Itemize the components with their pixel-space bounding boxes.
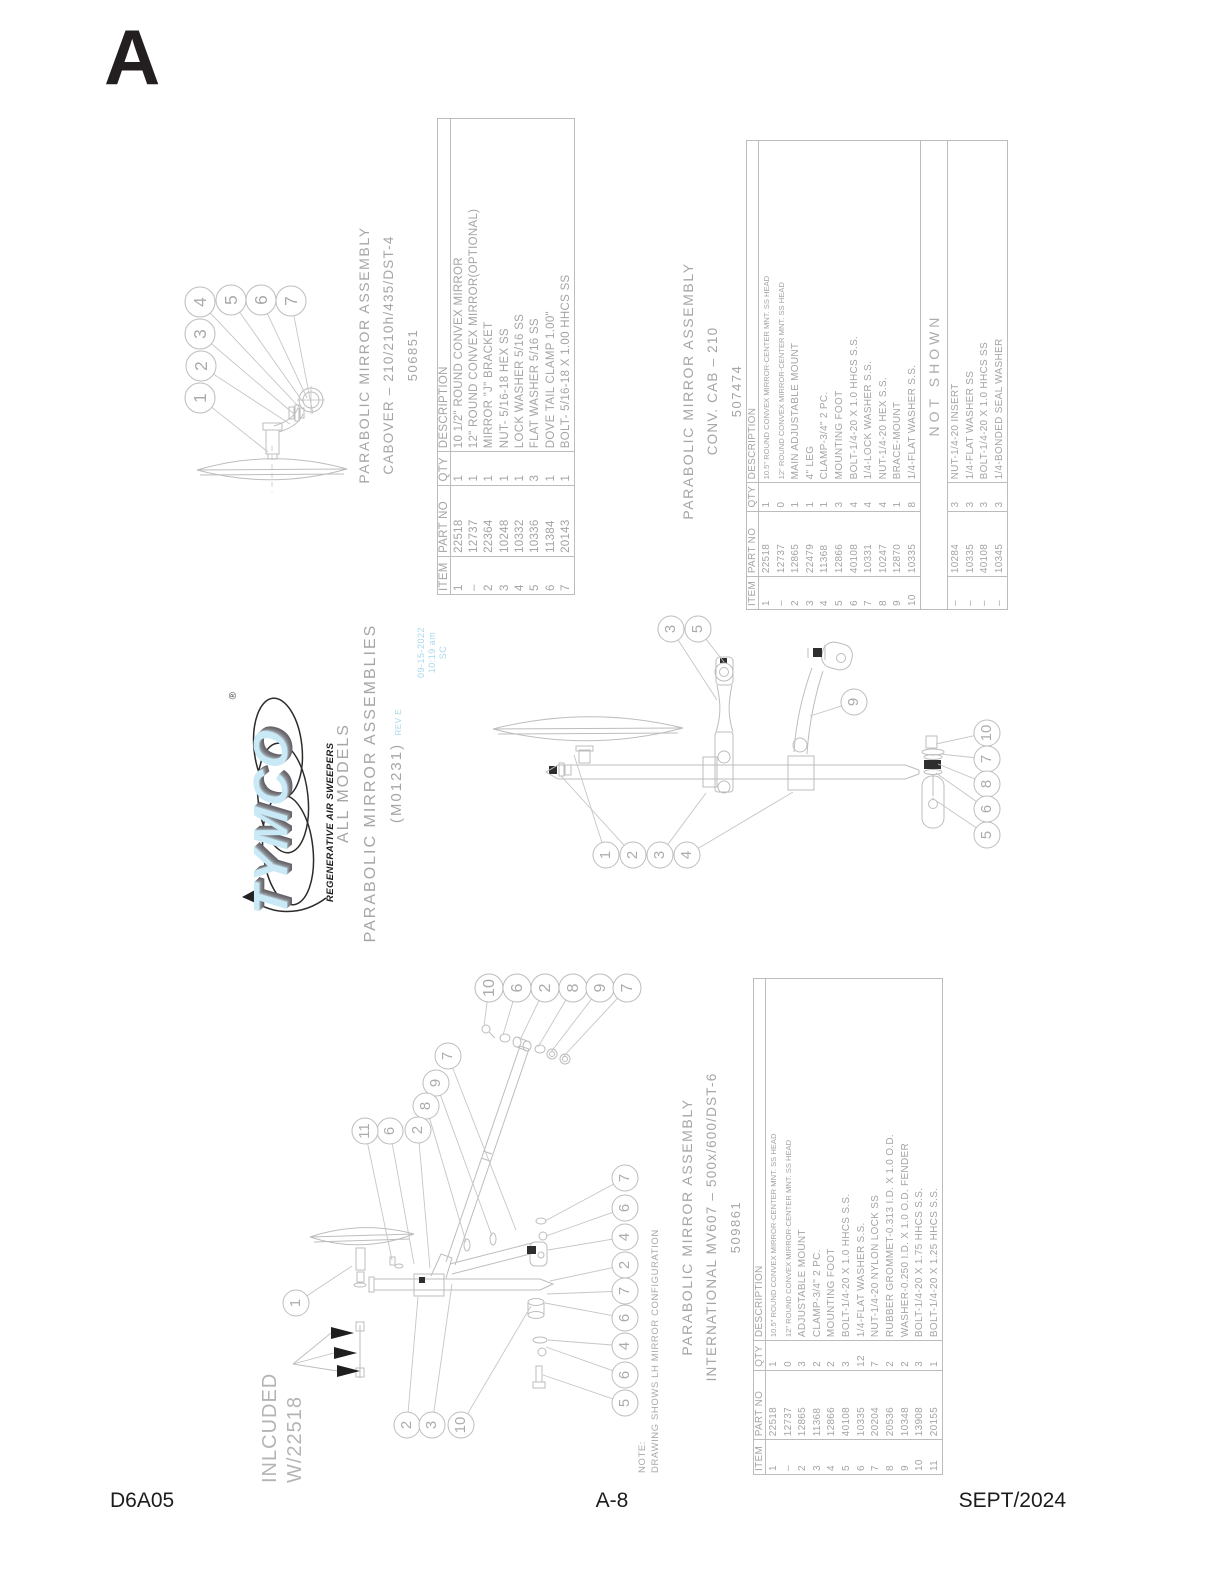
callout-number: 9 [428, 1079, 444, 1087]
assembly-number: 509861 [724, 1052, 747, 1402]
leader-line [408, 1297, 418, 1412]
assembly-model-line: INTERNATIONAL MV607 – 500x/600/DST-6 [700, 1052, 724, 1402]
leader-line [211, 344, 294, 414]
callout-number: 6 [617, 1371, 633, 1379]
parts-table-convcab: ITEMPART NOQTYDESCRIPTION122518110.5" RO… [746, 140, 1008, 610]
table-row: 122518110.5" ROUND CONVEX MIRROR-CENTER … [759, 141, 774, 610]
callout-number: 9 [591, 983, 609, 992]
callout-number: 2 [399, 1421, 415, 1429]
title-international: PARABOLIC MIRROR ASSEMBLY INTERNATIONAL … [675, 1052, 751, 1402]
leader-line [520, 1001, 539, 1040]
callout-number: 7 [617, 1287, 633, 1295]
leader-line [940, 754, 974, 758]
leader-line [551, 999, 591, 1052]
parts-table: ITEMPART NOQTYDESCRIPTION122518110.5" RO… [753, 978, 943, 1475]
table-row: 8102474NUT-1/4-20 HEX S.S. [876, 141, 891, 610]
table-row: 4113681CLAMP-3/4" 2 PC. [818, 141, 833, 610]
callout-number: 6 [251, 295, 271, 305]
included-note: INLCUDED W/22518 [258, 1343, 310, 1483]
table-row: 3102481NUT- 5/16-18 HEX SS [497, 119, 512, 595]
callout-number: 3 [652, 851, 668, 859]
callout-number: 6 [382, 1127, 398, 1135]
included-note-line: INLCUDED [258, 1343, 283, 1483]
drawing-main-title: ALL MODELS PARABOLIC MIRROR ASSEMBLIES (… [330, 613, 458, 953]
table-row: –1033531/4-FLAT WASHER SS [963, 141, 978, 610]
table-row: 2128651MAIN ADJUSTABLE MOUNT [788, 141, 803, 610]
callout-number: 7 [979, 755, 995, 763]
tymco-logo: TYMCO ® REGENERATIVE AIR SWEEPERS [226, 688, 336, 928]
table-row: 7202047NUT-1/4-20 NYLON LOCK SS [869, 979, 884, 1475]
leader-line [434, 1284, 452, 1412]
callout-number: 3 [663, 625, 679, 633]
table-row: 5128663MOUNTING FOOT [832, 141, 847, 610]
table-row: 122518110.5" ROUND CONVEX MIRROR-CENTER … [766, 979, 781, 1475]
callout-number: 3 [190, 329, 210, 339]
leader-line [468, 1306, 531, 1414]
leader-line [240, 312, 303, 402]
table-row: 6113841DOVE TAIL CLAMP 1.00" [543, 119, 558, 595]
callout-number: 5 [617, 1399, 633, 1407]
table-row: 9128701BRACE-MOUNT [891, 141, 906, 610]
note-label: NOTE: [636, 1203, 649, 1473]
revision-stamp: 09-15-2022 10:19 am SC [416, 627, 449, 678]
leader-line [810, 706, 842, 716]
leader-line [538, 1000, 566, 1047]
table-row: 101033581/4-FLAT WASHER S.S. [905, 141, 920, 610]
callout-number: 7 [281, 296, 301, 306]
leader-line [936, 736, 974, 744]
callout-number: 6 [617, 1204, 633, 1212]
stamp-initials: SC [438, 627, 449, 678]
table-row: –401083BOLT-1/4-20 X 1.0 HHCS SS [977, 141, 992, 610]
table-row: 610335121/4-FLAT WASHER S.S. [854, 979, 869, 1475]
table-row: 11201551BOLT-1/4-20 X 1.25 HHCS S.S. [927, 979, 942, 1475]
column-header: PART NO [747, 511, 759, 577]
diagram-international-assembly: 1062897798261117642764652310 [275, 955, 685, 1485]
drawing-number: (M01231) REV E [384, 743, 409, 823]
leader-line [563, 998, 617, 1057]
assembly-number: 506851 [401, 115, 424, 595]
column-header: ITEM [438, 556, 451, 594]
title-cabover: PARABOLIC MIRROR ASSEMBLY CABOVER – 210/… [352, 115, 436, 595]
leader-line [267, 314, 307, 398]
date-code: SEPT/2024 [959, 1489, 1066, 1513]
leader-line [548, 1340, 612, 1345]
callout-number: 8 [418, 1102, 434, 1110]
leader-line [440, 1095, 492, 1236]
callout-number: 6 [979, 805, 995, 813]
assembly-number: 507474 [725, 222, 748, 560]
manual-page: A 1234567 PARABOLIC MIRROR ASSEMBLY CABO… [0, 0, 1224, 1584]
column-header: DESCRIPTION [438, 119, 451, 452]
leader-line [547, 1291, 612, 1294]
table-row: –102843NUT-1/4-20 INSERT [948, 141, 963, 610]
parts-table-cabover: ITEMPART NOQTYDESCRIPTION122518110 1/2" … [437, 118, 575, 595]
leader-line [214, 374, 290, 424]
table-row: 10139083BOLT-1/4-20 X 1.75 HHCS S.S. [912, 979, 927, 1475]
table-row: –1034531/4-BONDED SEAL WASHER [992, 141, 1007, 610]
leader-line [210, 313, 299, 407]
parts-table: ITEMPART NOQTYDESCRIPTION122518110 1/2" … [437, 118, 575, 595]
table-row: 9103482WASHER-0.250 I.D. X 1.0 O.D. FEND… [898, 979, 913, 1475]
diagram-cabover-callouts: 1234567 [185, 285, 313, 452]
assembly-title-line: PARABOLIC MIRROR ASSEMBLY [352, 115, 377, 595]
assembly-model-line: CABOVER – 210/210h/435/DST-4 [377, 115, 401, 595]
callout-number: 5 [221, 295, 241, 305]
table-row: 5401083BOLT-1/4-20 X 1.0 HHCS S.S. [839, 979, 854, 1475]
callout-number: 7 [618, 983, 636, 992]
table-row: 32247914" LEG [803, 141, 818, 610]
diagram-international-callouts: 1062897798261117642764652310 [283, 974, 641, 1438]
callout-number: 4 [190, 297, 210, 307]
included-note-line: W/22518 [283, 1343, 308, 1483]
callout-number: 4 [679, 851, 695, 859]
assembly-model-line: CONV. CAB – 210 [701, 222, 725, 560]
table-row: 71033141/4-LOCK WASHER S.S. [861, 141, 876, 610]
callout-number: 2 [536, 983, 554, 992]
table-row: –12737112" ROUND CONVEX MIRROR(OPTIONAL) [466, 119, 481, 595]
callout-number: 11 [357, 1123, 373, 1138]
leader-line [543, 1375, 613, 1399]
leader-line [548, 1239, 612, 1250]
leader-line [698, 792, 793, 848]
leader-line [212, 407, 268, 452]
callout-number: 1 [190, 393, 210, 403]
column-header: QTY [438, 452, 451, 485]
column-header: QTY [747, 483, 759, 511]
column-header: PART NO [754, 1370, 766, 1439]
table-row: 7201431BOLT- 5/16-18 X 1.00 HHCS SS [558, 119, 574, 595]
callout-number: 2 [410, 1126, 426, 1134]
callout-number: 6 [508, 983, 526, 992]
callout-number: 2 [191, 361, 211, 371]
callout-number: 4 [617, 1342, 633, 1350]
callout-number: 8 [564, 983, 582, 992]
leader-line [546, 1347, 613, 1371]
stamp-date: 09-15-2022 [416, 627, 427, 678]
column-header: QTY [754, 1341, 766, 1371]
table-row: –12737012" ROUND CONVEX MIRROR-CENTER MN… [781, 979, 796, 1475]
title-assemblies: PARABOLIC MIRROR ASSEMBLIES [357, 613, 384, 953]
leader-line [574, 755, 602, 843]
parts-table-international: ITEMPART NOQTYDESCRIPTION122518110.5" RO… [753, 978, 943, 1475]
callout-number: 6 [617, 1314, 633, 1322]
table-row: 6401084BOLT-1/4-20 X 1.0 HHCS S.S. [847, 141, 862, 610]
column-header: PART NO [438, 485, 451, 556]
leader-line [678, 640, 717, 700]
callout-number: 10 [480, 979, 498, 997]
stamp-time: 10:19 am [427, 627, 438, 678]
table-row: 4128662MOUNTING FOOT [825, 979, 840, 1475]
leader-line [561, 776, 624, 845]
diagram-cabover-mirror: 1234567 [170, 255, 360, 505]
callout-number: 5 [979, 831, 995, 839]
leader-line [368, 1144, 392, 1260]
leader-line [938, 764, 975, 779]
leader-line [503, 1001, 513, 1035]
section-letter: A [104, 18, 160, 96]
callout-number: 2 [617, 1261, 633, 1269]
leader-line [706, 639, 724, 662]
diagram-convcab-callouts: 3591078651234 [561, 616, 1000, 868]
logo-wordmark: TYMCO [244, 725, 299, 919]
callout-number: 1 [598, 851, 614, 859]
leader-line [546, 1212, 613, 1236]
column-header: DESCRIPTION [754, 979, 766, 1341]
title-convcab: PARABOLIC MIRROR ASSEMBLY CONV. CAB – 21… [676, 222, 746, 560]
callout-number: 7 [440, 1052, 456, 1060]
parts-table: ITEMPART NOQTYDESCRIPTION122518110.5" RO… [746, 140, 1008, 610]
table-row: 2128653ADJUSTABLE MOUNT [795, 979, 810, 1475]
leader-line [668, 793, 706, 845]
assembly-title-line: PARABOLIC MIRROR ASSEMBLY [676, 222, 701, 560]
column-header: DESCRIPTION [747, 141, 759, 483]
column-header: ITEM [754, 1440, 766, 1475]
leader-line [932, 798, 976, 828]
table-row: 5103363FLAT WASHER 5/16 SS [528, 119, 543, 595]
callout-number: 10 [979, 725, 995, 742]
leader-line [545, 1303, 612, 1316]
leader-line [430, 1118, 466, 1242]
diagram-convcab-assembly: 3591078651234 [470, 590, 1005, 880]
callout-number: 3 [424, 1421, 440, 1429]
mirror-drawing-geometry [197, 386, 347, 492]
table-row: 4103321LOCK WASHER 5/16 SS [512, 119, 527, 595]
leader-line [419, 1143, 430, 1268]
registered-trademark-icon: ® [228, 692, 239, 699]
leader-line [484, 1002, 487, 1026]
leader-line [550, 1268, 612, 1281]
callout-number: 8 [979, 780, 995, 788]
table-row: 122518110 1/2" ROUND CONVEX MIRROR [451, 119, 467, 595]
drawing-note: NOTE: DRAWING SHOWS LH MIRROR CONFIGURAT… [636, 1203, 666, 1473]
note-text: DRAWING SHOWS LH MIRROR CONFIGURATION [649, 1203, 662, 1473]
callout-number: 9 [846, 698, 862, 706]
table-row: 8205362RUBBER GROMMET-0.313 I.D. X 1.0 O… [883, 979, 898, 1475]
leader-line [453, 1068, 516, 1230]
not-shown-divider: NOT SHOWN [921, 141, 948, 610]
table-row: 2223641MIRROR "J" BRACKET [482, 119, 497, 595]
assembly-drawing-geometry [493, 640, 944, 828]
table-row: 3113682CLAMP-3/4" 2 PC. [810, 979, 825, 1475]
leader-line [307, 1266, 352, 1296]
callout-number: 10 [453, 1417, 469, 1434]
callout-number: 1 [288, 1299, 304, 1307]
callout-number: 4 [617, 1233, 633, 1241]
callout-number: 5 [690, 625, 706, 633]
page-footer: D6A05 A-8 SEPT/2024 [0, 1489, 1224, 1519]
table-row: –12737012" ROUND CONVEX MIRROR-CENTER MN… [774, 141, 789, 610]
callout-number: 7 [617, 1174, 633, 1182]
title-all-models: ALL MODELS [330, 613, 357, 953]
callout-number: 2 [625, 851, 641, 859]
revision-label: REV E [386, 709, 411, 736]
leader-line [392, 1144, 414, 1264]
